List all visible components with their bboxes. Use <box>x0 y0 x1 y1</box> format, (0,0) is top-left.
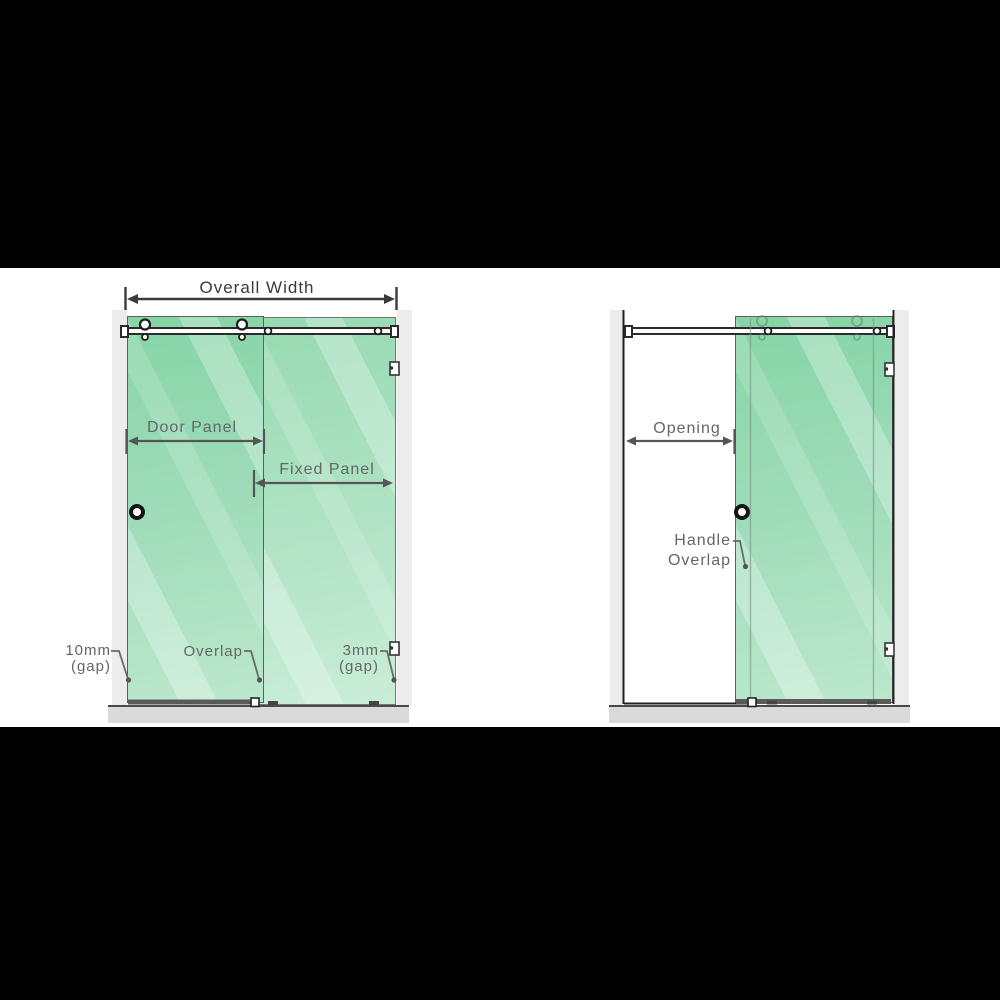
door-handle-icon <box>129 504 145 520</box>
floor-base <box>609 705 910 723</box>
handle-overlap-label: Handle Overlap <box>650 531 731 571</box>
rail-end-cap-right <box>390 325 399 338</box>
overall-width-label: Overall Width <box>167 279 347 297</box>
door-handle-icon <box>734 504 750 520</box>
gap-10mm-label: 10mm (gap) <box>52 643 111 675</box>
fixed-panel-label: Fixed Panel <box>257 461 397 479</box>
rail-end-cap-left <box>120 325 129 338</box>
handle-overlap-line1: Handle <box>650 531 731 551</box>
opening-label: Opening <box>635 420 739 438</box>
gap-10mm-unit: (gap) <box>52 659 111 675</box>
door-panel-label: Door Panel <box>122 419 262 437</box>
door-glass-panel-open <box>735 316 893 703</box>
gap-3mm-unit: (gap) <box>320 659 379 675</box>
wall-strip-left <box>610 310 623 705</box>
top-rail <box>625 327 893 335</box>
top-rail <box>121 327 399 335</box>
wall-strip-right <box>397 310 412 705</box>
wall-strip-right <box>895 310 909 705</box>
rail-end-cap-right <box>886 325 895 338</box>
floor-base <box>108 705 409 723</box>
gap-3mm-label: 3mm (gap) <box>320 643 379 675</box>
overlap-label: Overlap <box>168 644 243 660</box>
diagram-stage: Overall Width Door Panel Fixed Panel Ove… <box>0 0 1000 1000</box>
rail-end-cap-left <box>624 325 633 338</box>
gap-3mm-value: 3mm <box>320 643 379 659</box>
handle-overlap-line2: Overlap <box>650 551 731 571</box>
gap-10mm-value: 10mm <box>52 643 111 659</box>
wall-strip-left <box>112 310 127 705</box>
